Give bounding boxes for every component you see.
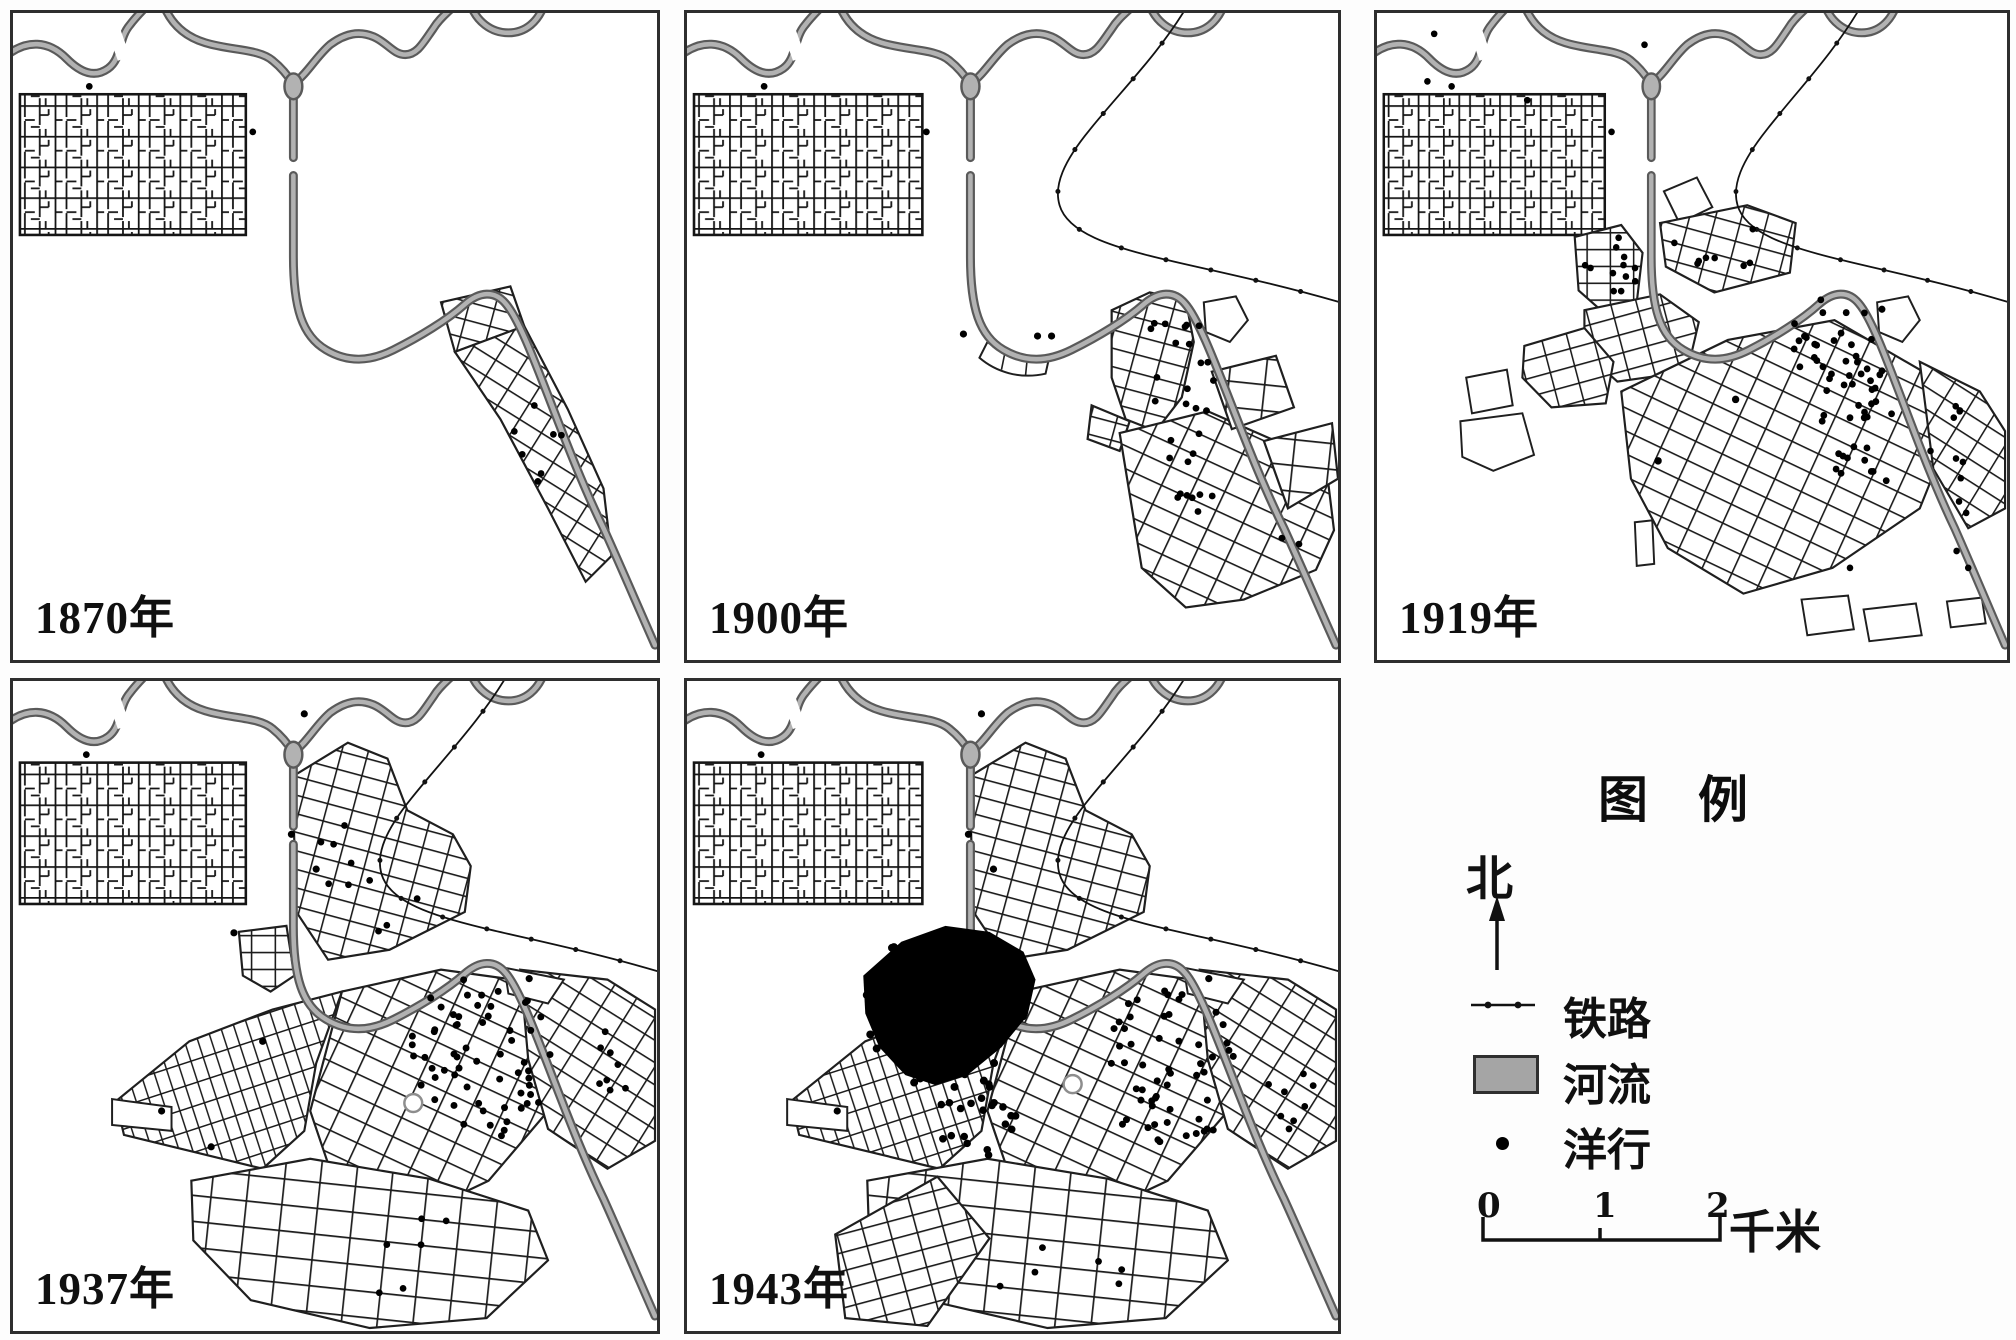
map-canvas-1937 [13, 681, 657, 1331]
map-canvas-1900 [687, 13, 1338, 660]
map-panel-1943: 1943年 [684, 678, 1341, 1334]
year-label-1919: 1919年 [1399, 581, 1539, 646]
map-canvas-1943 [687, 681, 1338, 1331]
map-panel-1900: 1900年 [684, 10, 1341, 663]
map-canvas-1919 [1377, 13, 2007, 660]
scale-unit-label: 千米 [1729, 1196, 1821, 1262]
map-panel-1919: 1919年 [1374, 10, 2010, 663]
year-label-1937: 1937年 [35, 1252, 175, 1317]
railway-line-icon [1468, 994, 1540, 1016]
map-canvas-1870 [13, 13, 657, 660]
north-arrow-icon [1475, 894, 1519, 974]
figure-urban-growth-maps: 1870年 1900年 1919年 1937年 1943年 图 例 北 铁路 河… [0, 0, 2016, 1340]
legend-title: 图 例 [1598, 760, 1748, 832]
legend-label-railway: 铁路 [1563, 983, 1651, 1047]
legend-label-firm: 洋行 [1563, 1114, 1651, 1178]
river-swatch-icon [1473, 1055, 1539, 1094]
year-label-1943: 1943年 [709, 1252, 849, 1317]
map-panel-1870: 1870年 [10, 10, 660, 663]
year-label-1870: 1870年 [35, 581, 175, 646]
map-panel-1937: 1937年 [10, 678, 660, 1334]
firm-dot-icon [1496, 1137, 1509, 1150]
legend-label-river: 河流 [1563, 1049, 1651, 1113]
year-label-1900: 1900年 [709, 581, 849, 646]
scale-bar [1480, 1213, 1726, 1245]
